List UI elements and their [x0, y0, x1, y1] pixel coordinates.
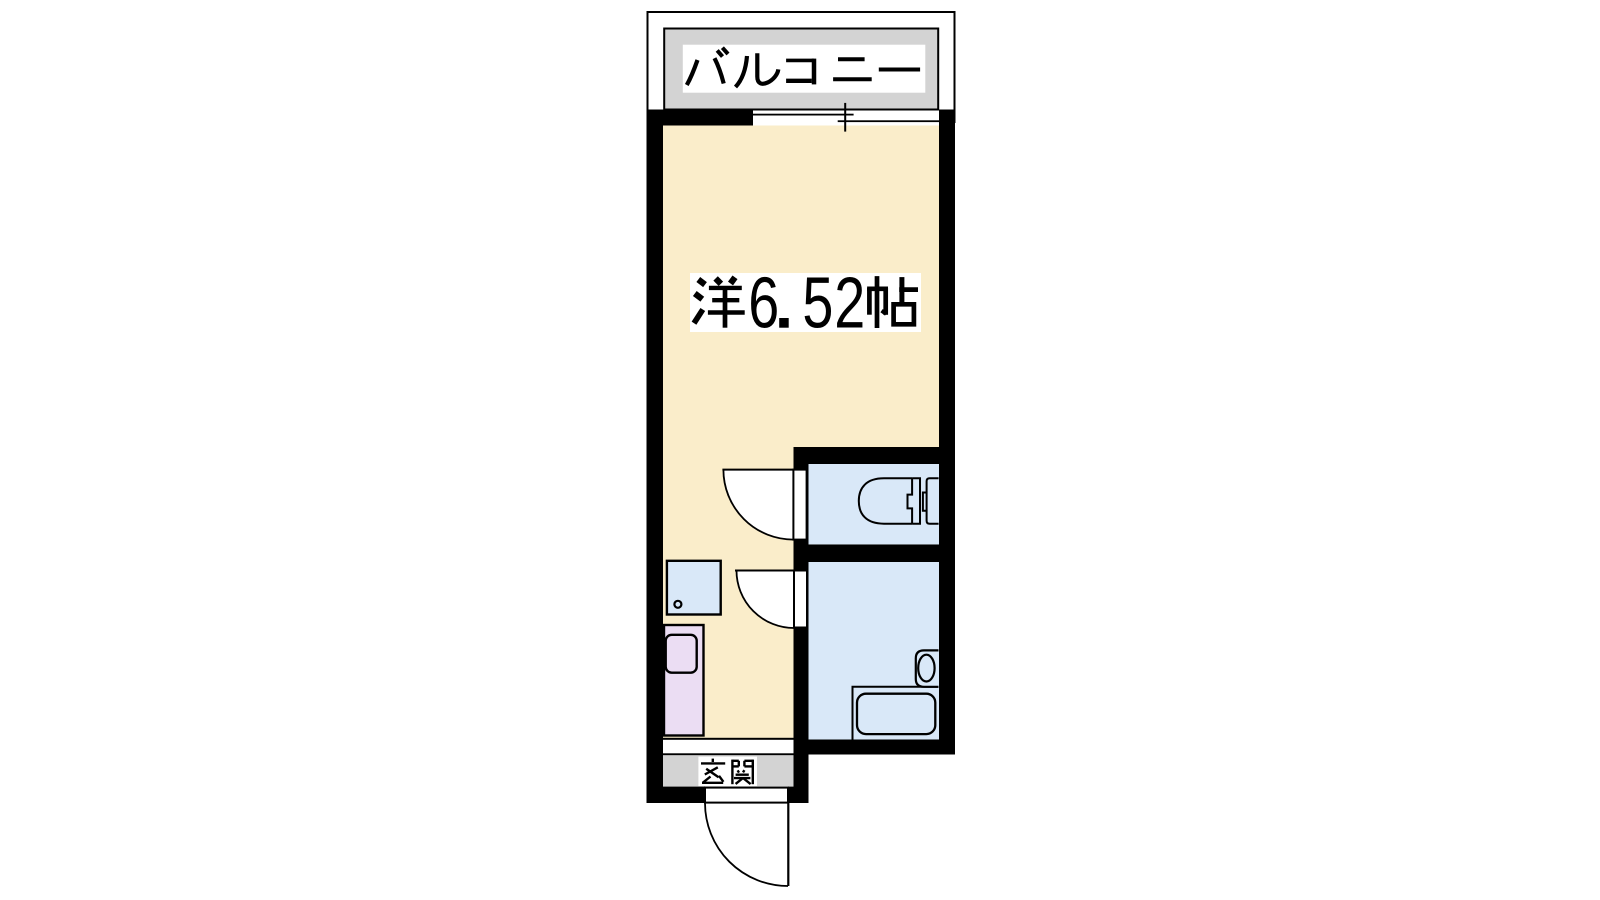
svg-text:6: 6: [748, 264, 779, 344]
svg-text:2: 2: [834, 264, 865, 344]
svg-text:5: 5: [802, 264, 833, 344]
